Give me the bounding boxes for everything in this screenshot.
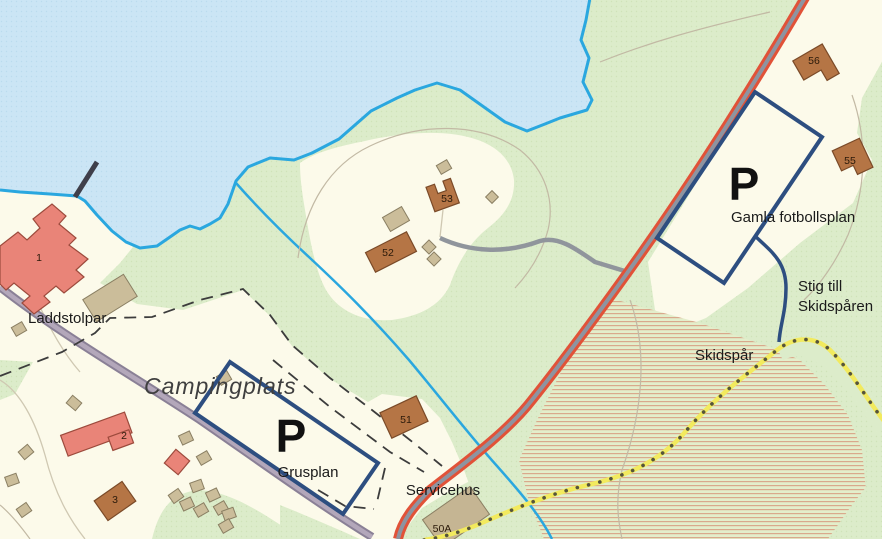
label-campingplats: Campingplats: [144, 373, 297, 399]
building-56-number: 56: [808, 55, 820, 67]
building-3-number: 3: [112, 494, 118, 506]
label-servicehus: Servicehus: [406, 482, 480, 499]
building-51-number: 51: [400, 414, 412, 426]
label-stig-line1: Stig till: [798, 278, 842, 295]
building-52-number: 52: [382, 247, 394, 259]
parking-symbol-fotbollsplan: P: [729, 158, 760, 210]
building-50a-number: 50A: [433, 523, 452, 535]
building-1-number: 1: [36, 252, 42, 264]
label-grusplan: Grusplan: [278, 464, 339, 481]
label-laddstolpar: Laddstolpar: [28, 310, 106, 327]
parking-symbol-grusplan: P: [276, 410, 307, 462]
label-skidspar: Skidspår: [695, 347, 753, 364]
building-53-number: 53: [441, 193, 453, 205]
label-stig-line2: Skidspåren: [798, 298, 873, 315]
building-2-number: 2: [121, 430, 127, 442]
map-svg: 1 2 3 50A 51 52 53 55 56 Laddstolpar Cam…: [0, 0, 882, 539]
building-55-number: 55: [844, 155, 856, 167]
map-canvas[interactable]: 1 2 3 50A 51 52 53 55 56 Laddstolpar Cam…: [0, 0, 882, 539]
label-gamla-fotbollsplan: Gamla fotbollsplan: [731, 209, 855, 226]
